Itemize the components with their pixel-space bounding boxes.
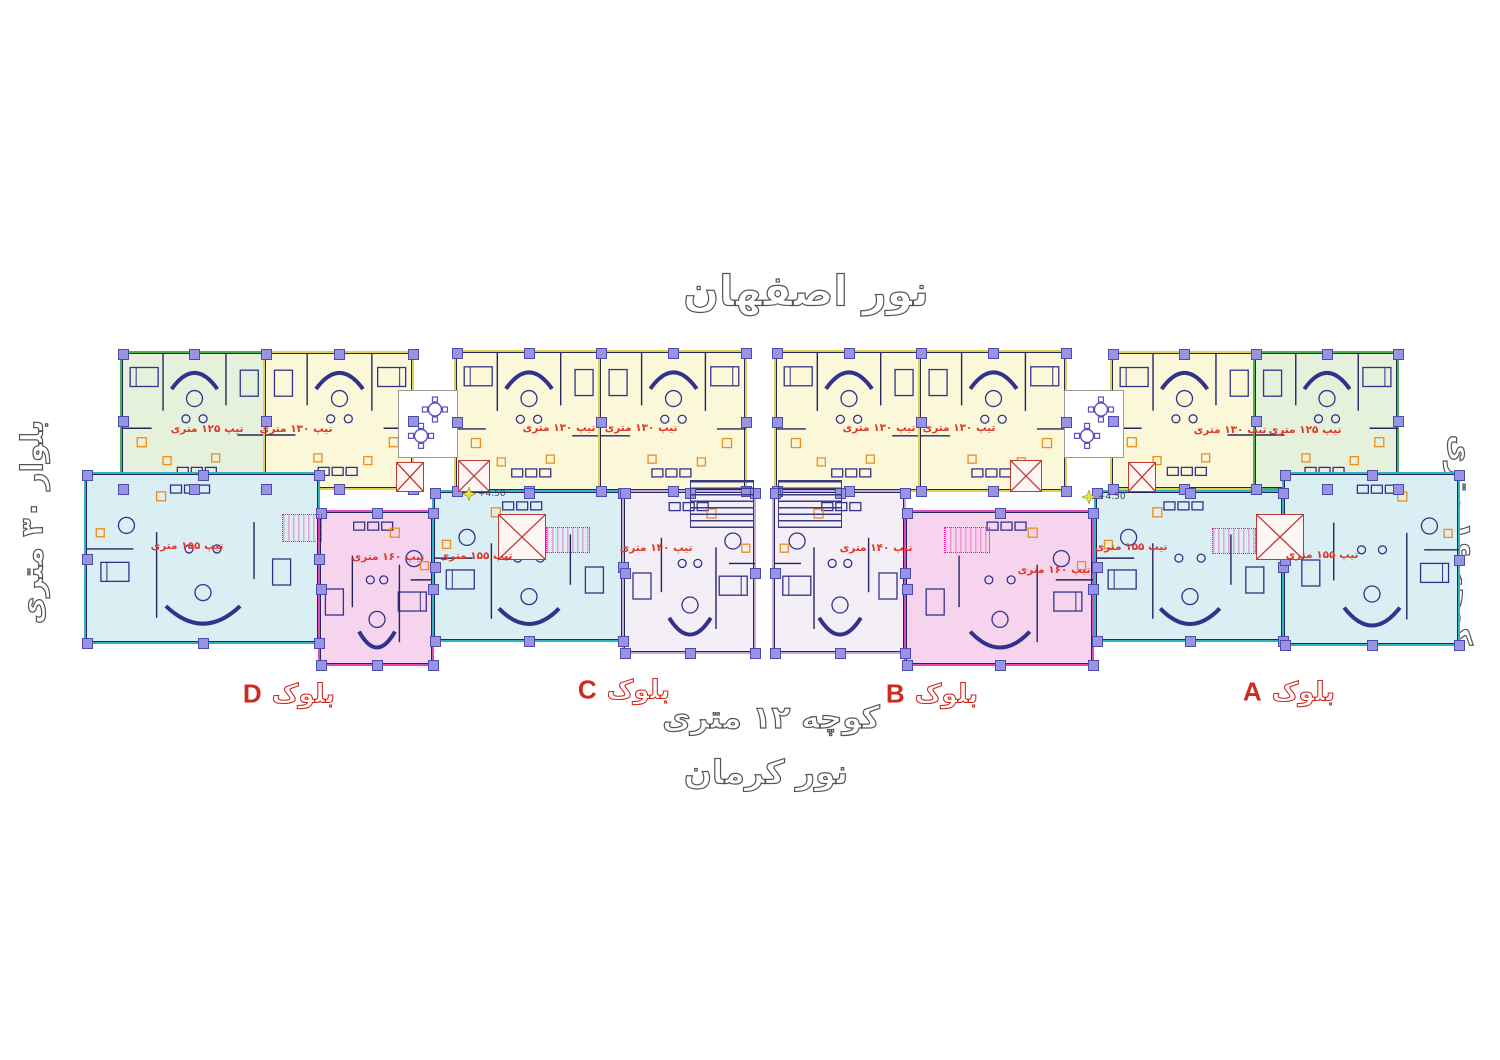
column-marker [770,648,781,659]
unit-region-t4b [1255,353,1397,488]
column-marker [995,508,1006,519]
stair-run [1212,528,1256,554]
column-marker [198,638,209,649]
column-marker [430,636,441,647]
elevation-marker: +4.50 [1082,490,1126,504]
column-marker [772,348,783,359]
column-marker [261,484,272,495]
elevator-shaft [1128,462,1156,492]
unit-type-label: تیپ ۱۵۵ متری [440,550,513,562]
unit-region-d1 [86,474,318,642]
column-marker [988,348,999,359]
column-marker [596,348,607,359]
elevation-value: +4.50 [1098,492,1126,502]
column-marker [741,417,752,428]
column-marker [916,486,927,497]
column-marker [261,349,272,360]
column-marker [902,660,913,671]
column-marker [916,348,927,359]
column-marker [452,417,463,428]
column-marker [772,417,783,428]
elevation-star-icon [462,487,476,501]
unit-region-t3a [776,352,920,490]
column-marker [524,488,535,499]
column-marker [1393,484,1404,495]
column-marker [1088,660,1099,671]
column-marker [408,349,419,360]
column-marker [668,348,679,359]
column-marker [118,484,129,495]
elevation-star-icon [1082,490,1096,504]
column-marker [1393,416,1404,427]
column-marker [118,416,129,427]
column-marker [1088,584,1099,595]
column-marker [1454,470,1465,481]
column-marker [741,348,752,359]
column-marker [316,584,327,595]
column-marker [1367,470,1378,481]
unit-type-label: تیپ ۱۳۰ متری [923,422,996,434]
column-marker [524,348,535,359]
unit-region-t1a [122,353,265,488]
column-marker [750,568,761,579]
unit-type-label: تیپ ۱۴۰ متری [840,542,913,554]
unit-type-label: تیپ ۱۶۰ متری [352,551,425,563]
column-marker [900,488,911,499]
site-plan-canvas: نور اصفهان بلوار ۳۰ متری کوچه ۱۶ متری کو… [0,0,1500,1060]
column-marker [428,660,439,671]
elevator-shaft [1010,460,1042,492]
elevation-marker: +4.50 [462,487,506,501]
unit-region-a1 [1096,492,1282,640]
column-marker [334,349,345,360]
column-marker [900,648,911,659]
column-marker [428,508,439,519]
unit-region-b2 [906,512,1092,664]
column-marker [902,508,913,519]
unit-type-label: تیپ ۱۴۰ متری [620,542,693,554]
unit-type-label: تیپ ۱۵۵ متری [1095,541,1168,553]
column-marker [1251,484,1262,495]
column-marker [1367,640,1378,651]
column-marker [314,470,325,481]
unit-type-label: تیپ ۱۵۵ متری [1286,549,1359,561]
unit-type-label: تیپ ۱۳۰ متری [260,423,333,435]
column-marker [372,660,383,671]
column-marker [408,416,419,427]
unit-type-label: تیپ ۱۵۵ متری [151,540,224,552]
column-marker [1280,470,1291,481]
column-marker [430,488,441,499]
column-marker [620,568,631,579]
column-marker [988,486,999,497]
unit-type-label: تیپ ۱۶۰ متری [1018,564,1091,576]
column-marker [685,648,696,659]
column-marker [1061,486,1072,497]
column-marker [618,636,629,647]
column-marker [1185,488,1196,499]
column-marker [844,348,855,359]
column-marker [1061,348,1072,359]
column-marker [1092,636,1103,647]
column-marker [334,484,345,495]
elevation-value: +4.50 [478,489,506,499]
entry-stair-treads [690,480,754,528]
column-marker [1108,416,1119,427]
unit-type-label: تیپ ۱۳۰ متری [1194,424,1267,436]
column-marker [428,584,439,595]
column-marker [902,584,913,595]
unit-region-d2 [320,512,432,664]
column-marker [314,554,325,565]
column-marker [430,562,441,573]
column-marker [82,554,93,565]
column-marker [82,470,93,481]
column-marker [1061,417,1072,428]
unit-type-label: تیپ ۱۲۵ متری [171,423,244,435]
column-marker [1185,636,1196,647]
column-marker [1454,640,1465,651]
column-marker [316,660,327,671]
unit-region-t3b [920,352,1065,490]
column-marker [1108,349,1119,360]
elevator-shaft [396,462,424,492]
column-marker [668,486,679,497]
stair-run [282,514,322,542]
column-marker [82,638,93,649]
column-marker [1393,349,1404,360]
column-marker [452,348,463,359]
column-marker [1322,484,1333,495]
column-marker [596,486,607,497]
column-marker [750,648,761,659]
column-marker [835,648,846,659]
column-marker [189,484,200,495]
column-marker [620,648,631,659]
column-marker [1251,349,1262,360]
column-marker [118,349,129,360]
column-marker [1454,555,1465,566]
entry-stair-treads [778,480,842,528]
column-marker [995,660,1006,671]
column-marker [189,349,200,360]
column-marker [900,568,911,579]
column-marker [1088,508,1099,519]
column-marker [524,636,535,647]
unit-type-label: تیپ ۱۳۰ متری [605,422,678,434]
stair-run [546,527,590,553]
column-marker [1179,349,1190,360]
column-marker [1278,488,1289,499]
column-marker [198,470,209,481]
column-marker [372,508,383,519]
floor-plan-drawing: +4.50+4.50تیپ ۱۲۵ متریتیپ ۱۳۰ متریتیپ ۱۳… [0,0,1500,1060]
column-marker [1322,349,1333,360]
column-marker [770,568,781,579]
stair-run [944,527,990,553]
unit-type-label: تیپ ۱۲۵ متری [1269,424,1342,436]
column-marker [620,488,631,499]
unit-type-label: تیپ ۱۳۰ متری [523,422,596,434]
column-marker [1280,640,1291,651]
unit-region-t2b [600,352,745,490]
unit-region-t1b [265,353,412,488]
column-marker [1092,562,1103,573]
unit-type-label: تیپ ۱۳۰ متری [843,422,916,434]
column-marker [314,638,325,649]
